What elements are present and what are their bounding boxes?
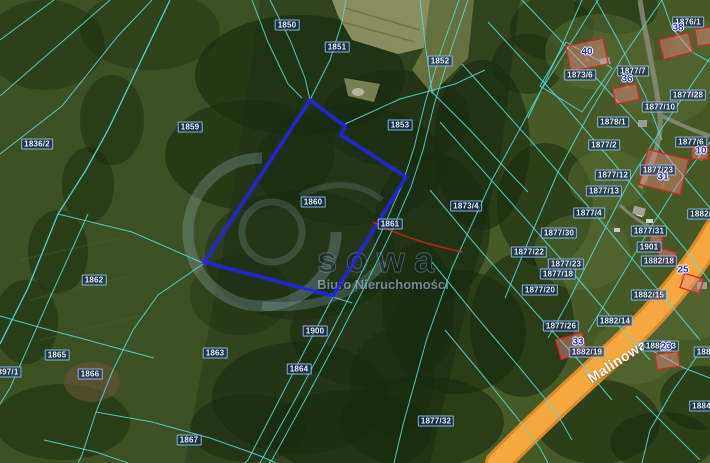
building-edge <box>695 27 710 46</box>
watermark-brand: sowa <box>317 239 443 280</box>
bare-soil-patch <box>64 362 120 402</box>
map-graphics: sowa Biuro Nieruchomości Biuro Nieruchom… <box>0 0 710 463</box>
outbuilding <box>649 235 663 248</box>
building-10 <box>692 146 708 159</box>
building-23 <box>655 351 680 369</box>
map-canvas[interactable]: sowa Biuro Nieruchomości Biuro Nieruchom… <box>0 0 710 463</box>
